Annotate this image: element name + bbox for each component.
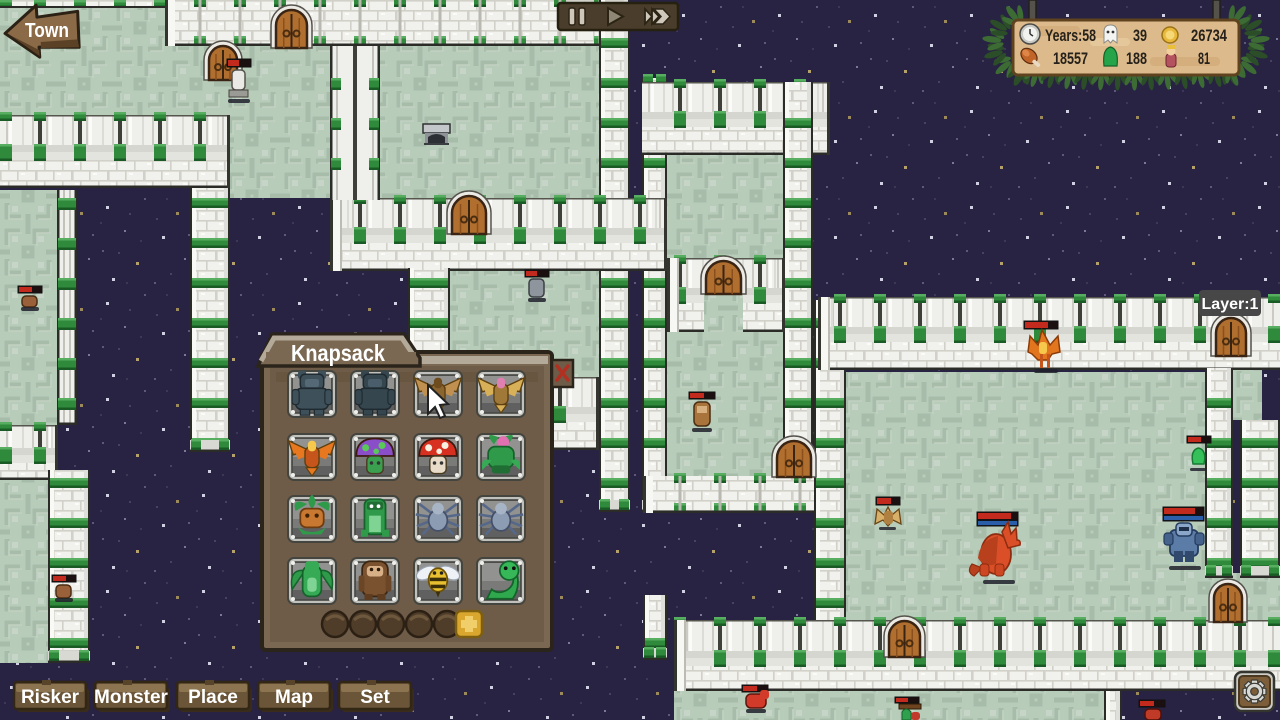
svg-text:Layer:1: Layer:1	[1202, 296, 1259, 313]
svg-text:Knapsack: Knapsack	[291, 340, 385, 366]
svg-text:Place: Place	[188, 687, 238, 708]
svg-text:26734: 26734	[1191, 26, 1227, 45]
svg-text:18557: 18557	[1053, 49, 1088, 68]
svg-text:39: 39	[1133, 26, 1147, 45]
svg-text:Risker: Risker	[21, 687, 80, 708]
svg-text:Town: Town	[25, 20, 69, 42]
svg-text:Map: Map	[275, 687, 313, 708]
svg-text:81: 81	[1198, 49, 1210, 68]
svg-text:188: 188	[1126, 49, 1147, 68]
svg-text:Years:58: Years:58	[1045, 26, 1096, 45]
svg-text:Set: Set	[360, 687, 390, 708]
svg-text:Monster: Monster	[94, 687, 169, 708]
